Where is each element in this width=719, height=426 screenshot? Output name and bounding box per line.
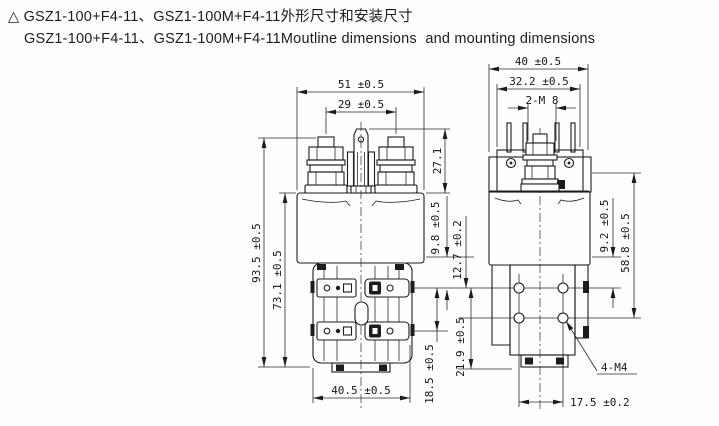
dim-side-hole-spacing: 17.5 ±0.2 <box>570 396 630 409</box>
dim-side-flange-height: 58.8 ±0.5 <box>619 213 632 273</box>
dim-front-aux-offset: 9.8 ±0.5 <box>429 202 442 255</box>
front-view <box>297 122 424 408</box>
dim-front-hole-offset: 12.7 ±0.2 <box>451 220 464 280</box>
dim-side-mount-thread: 4-M4 <box>601 361 628 374</box>
dim-side-step-height: 9.2 ±0.5 <box>598 200 611 253</box>
dim-front-aux-spacing: 18.5 ±0.5 <box>423 344 436 404</box>
front-body <box>297 193 424 263</box>
dim-front-base-width: 40.5 ±0.5 <box>331 384 391 397</box>
dim-side-flange-depth: 32.2 ±0.5 <box>509 75 569 88</box>
dim-front-hole-row-spacing: 21.9 ±0.5 <box>454 317 467 377</box>
front-stud-right <box>375 137 417 193</box>
dim-side-main-thread: 2-M 8 <box>525 94 558 107</box>
side-stud <box>521 134 565 192</box>
side-body <box>489 191 590 265</box>
dim-front-body-height: 73.1 ±0.5 <box>271 250 284 310</box>
mount-hole <box>514 283 524 293</box>
dim-front-terminal-spacing: 29 ±0.5 <box>338 98 384 111</box>
mount-hole <box>558 283 568 293</box>
side-dimensions: 40 ±0.5 32.2 ±0.5 2-M 8 9.2 ±0.5 58.8 ±0… <box>489 55 641 409</box>
front-stud-left <box>305 137 347 193</box>
front-dimensions: 51 ±0.5 29 ±0.5 27.1 93.5 ±0.5 73.1 ±0.5 <box>250 78 641 404</box>
dim-front-overall-width: 51 ±0.5 <box>338 78 384 91</box>
dim-front-terminal-height: 27.1 <box>431 148 444 175</box>
front-oval-slot <box>355 302 368 325</box>
front-aux-row-1 <box>317 279 409 297</box>
technical-drawing: 51 ±0.5 29 ±0.5 27.1 93.5 ±0.5 73.1 ±0.5 <box>0 0 719 426</box>
front-aux-block <box>311 263 415 363</box>
dim-side-overall-depth: 40 ±0.5 <box>515 55 561 68</box>
mount-hole <box>514 313 524 323</box>
drawing-page: △ GSZ1-100+F4-11、GSZ1-100M+F4-11外形尺寸和安装尺… <box>0 0 719 426</box>
side-mounting-bracket <box>492 265 589 367</box>
dim-front-overall-height: 93.5 ±0.5 <box>250 223 263 283</box>
